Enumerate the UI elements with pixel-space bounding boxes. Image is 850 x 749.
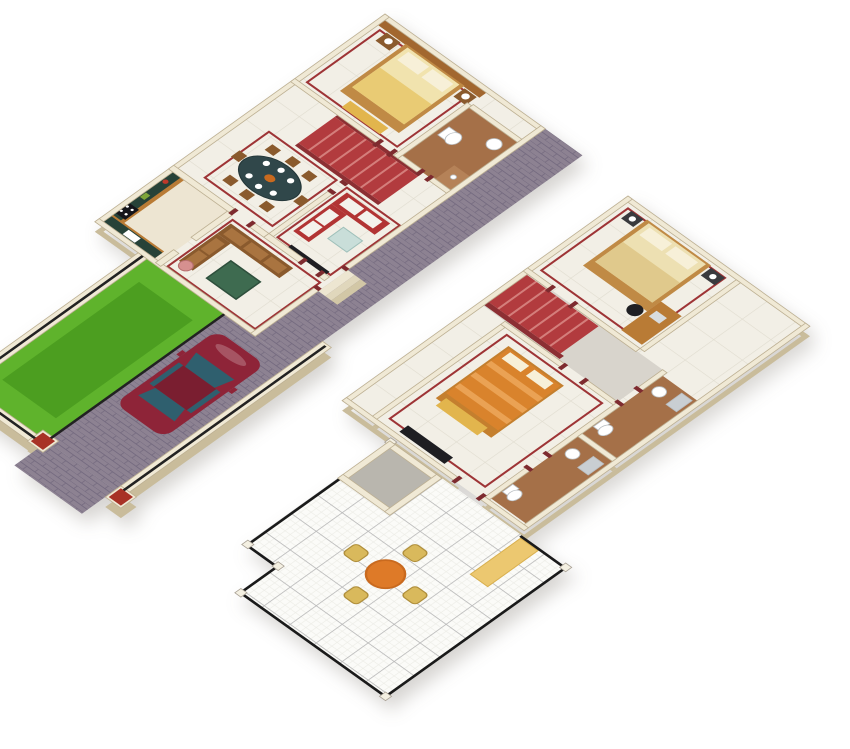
isometric-floor-plan <box>0 0 850 749</box>
floor-plan-canvas <box>0 0 850 749</box>
